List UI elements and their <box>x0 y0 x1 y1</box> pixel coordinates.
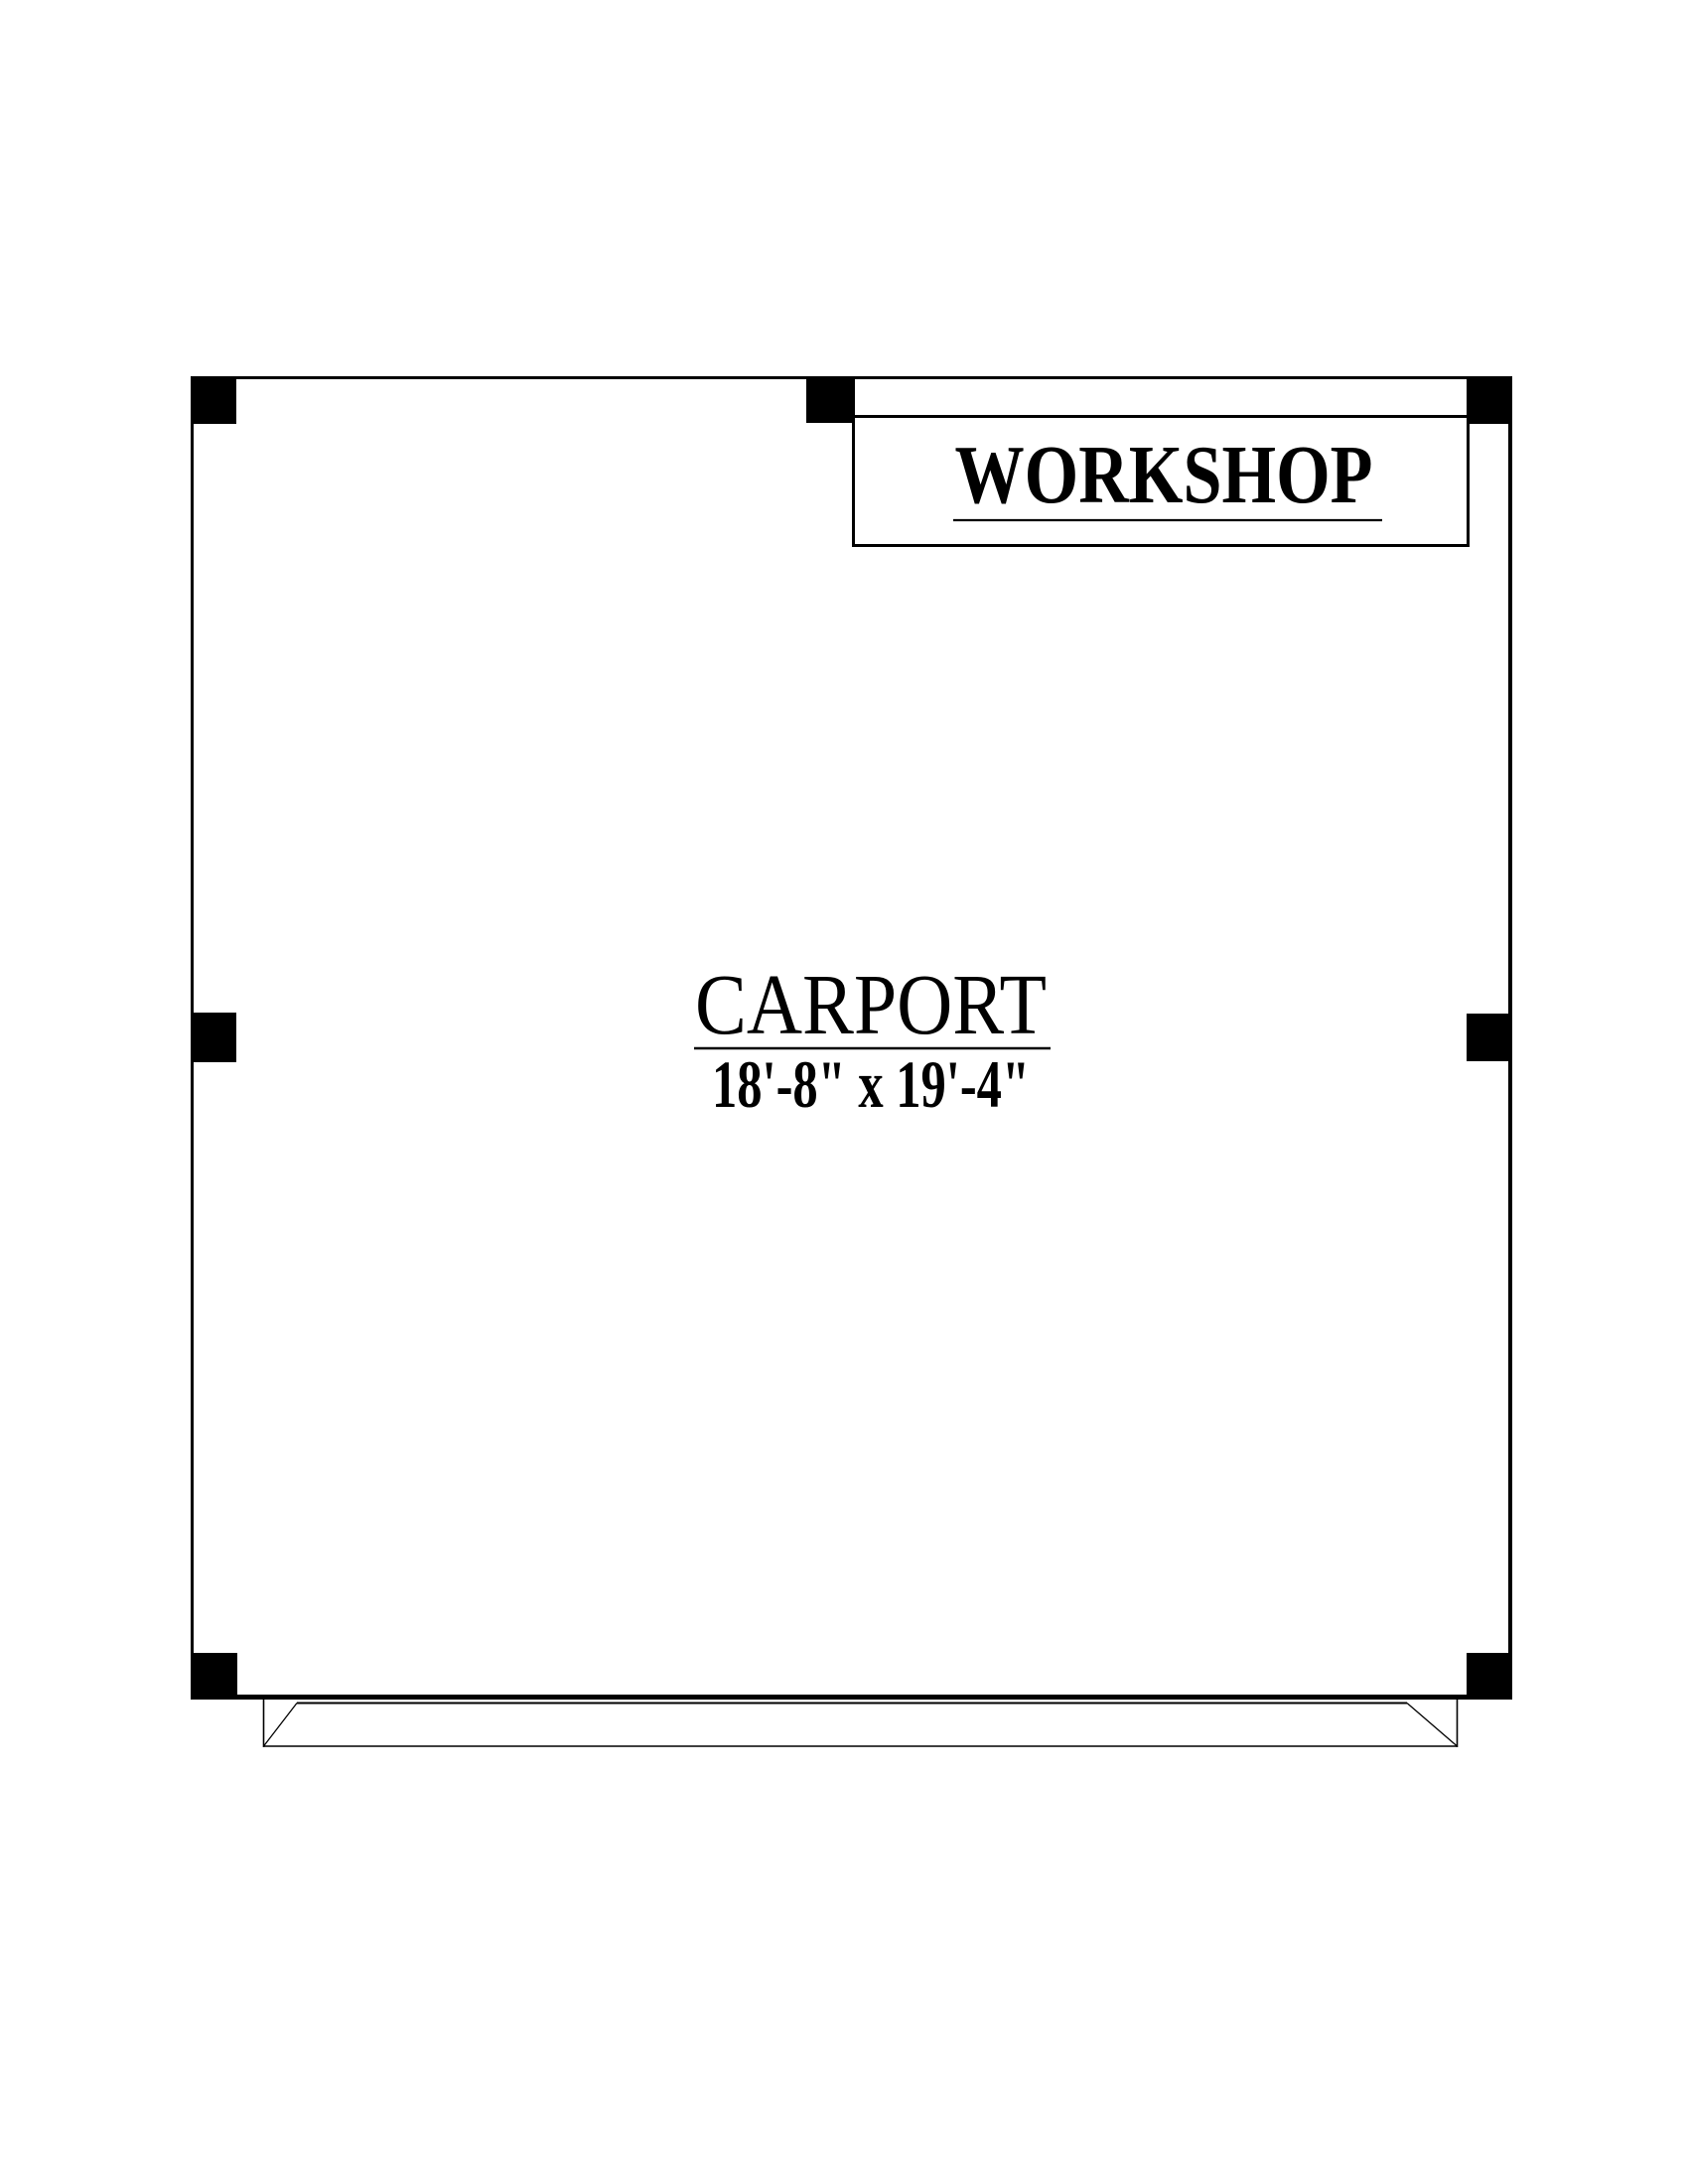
carport-dimensions: 18'-8" x 19'-4" <box>712 1046 1030 1122</box>
workshop-label-box: WORKSHOP <box>852 378 1469 546</box>
post-middle-right <box>1467 1014 1511 1061</box>
workshop-box-divider <box>852 415 1469 418</box>
apron-left-bevel <box>264 1704 298 1747</box>
driveway-apron <box>263 1700 1458 1747</box>
post-top-middle <box>806 378 852 423</box>
floor-plan-page: WORKSHOP CARPORT 18'-8" x 19'-4" <box>0 0 1688 2184</box>
carport-label: CARPORT <box>695 956 1047 1052</box>
floor-plan-canvas: WORKSHOP CARPORT 18'-8" x 19'-4" <box>0 0 1688 2184</box>
post-top-left <box>191 376 236 424</box>
post-bottom-right <box>1467 1653 1512 1700</box>
carport-wall-bottom <box>191 1695 1512 1700</box>
workshop-label: WORKSHOP <box>955 429 1373 521</box>
apron-right-bevel <box>1407 1704 1458 1747</box>
post-top-right <box>1467 377 1511 424</box>
post-bottom-left <box>192 1653 237 1700</box>
post-middle-left <box>192 1013 236 1062</box>
carport-room-label: CARPORT 18'-8" x 19'-4" <box>694 956 1051 1122</box>
